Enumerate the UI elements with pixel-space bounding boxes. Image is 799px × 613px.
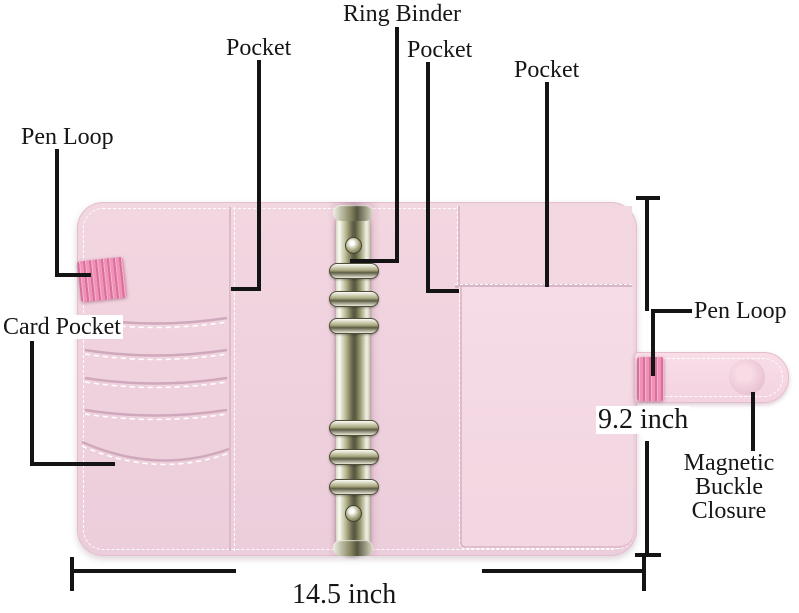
width-dimension-cap-right [642,556,646,591]
ring-bar-top-cap [333,205,373,221]
width-dimension-line [70,569,236,573]
label-pocket-left: Pocket [224,36,293,60]
ring-bar-bottom-cap [333,540,373,556]
height-dimension-line [645,196,649,311]
magnetic-buckle-leader-line [751,392,755,451]
pocket-right-leader-line [545,82,549,287]
label-ring-binder: Ring Binder [341,2,463,26]
card-slot-2 [85,350,227,356]
product-diagram: Pen Loop Pocket Ring Binder Pocket Pocke… [0,0,799,613]
ring-bar-rivet [345,505,362,522]
label-pen-loop-right: Pen Loop [692,299,789,323]
label-magnetic-line1: Magnetic [684,450,775,476]
binder-ring [329,420,379,436]
label-pen-loop-left: Pen Loop [19,125,116,149]
label-magnetic-buckle-closure: Magnetic Buckle Closure [653,451,799,523]
label-card-pocket: Card Pocket [1,315,123,339]
width-dimension-line [482,569,646,573]
label-width-dimension: 14.5 inch [290,581,398,609]
label-pocket-middle: Pocket [405,38,474,62]
binder-ring [329,291,379,307]
label-height-dimension: 9.2 inch [596,406,690,434]
label-pocket-right: Pocket [512,58,581,82]
ring-binder-leader-line [395,27,399,263]
binder-ring [329,263,379,279]
card-pocket-opening [82,442,229,460]
binder-ring [329,318,379,334]
pen-loop-right-leader-line [651,309,692,313]
magnet-button [729,359,765,395]
card-slot-3 [85,378,227,384]
height-dimension-cap-bottom [635,553,661,557]
width-dimension-cap-left [70,557,74,591]
pen-loop-left-leader-line [55,149,59,277]
pocket-middle-leader-line [426,61,430,293]
pen-loop-left [77,257,127,303]
binder-ring [329,449,379,465]
pen-loop-left-leader-line [55,273,91,277]
card-pocket-leader-line [30,341,34,466]
card-pocket-leader-line [30,462,115,466]
pocket-left-leader-line [231,287,261,291]
binder-ring [329,479,379,495]
ring-binder-leader-line [350,259,399,263]
pen-loop-right-leader-line [651,309,655,376]
card-slot-4 [85,410,227,416]
label-magnetic-line2: Buckle Closure [692,474,767,524]
pocket-middle-leader-line [426,289,459,293]
ring-bar-rivet [345,237,362,254]
height-dimension-line [645,441,649,557]
pocket-left-leader-line [257,60,261,291]
